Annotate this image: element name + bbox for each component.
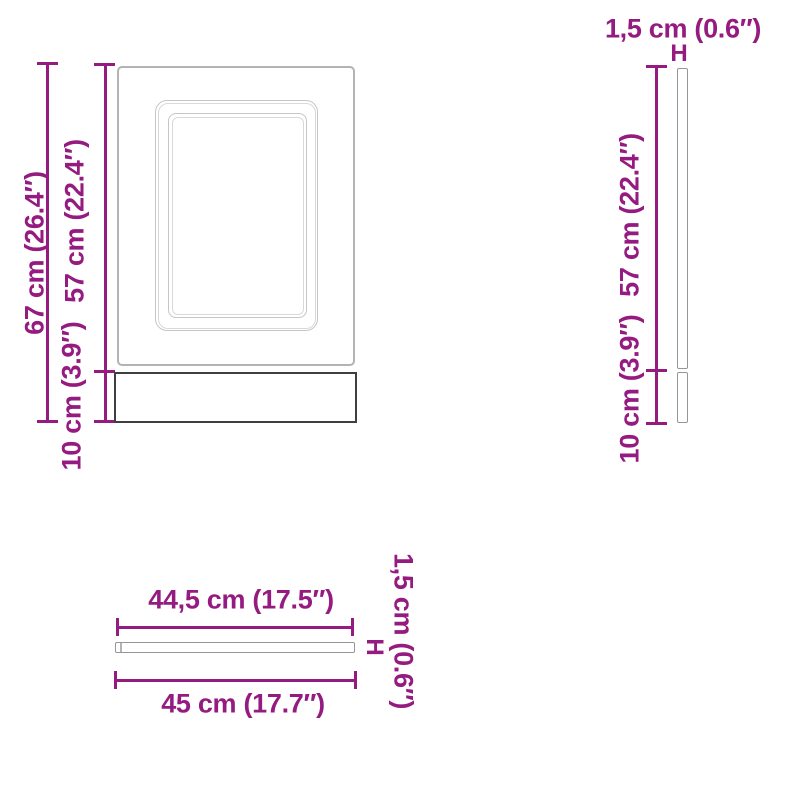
top-panel-left-endcap: [120, 643, 122, 652]
top-inner-dim-tick-left: [116, 618, 119, 636]
top-panel: [115, 642, 355, 653]
front-total-height-label: 67 cm (26.4″): [22, 171, 49, 335]
side-thickness-marker: H: [670, 42, 687, 66]
top-outer-dim-line: [116, 679, 357, 682]
side-plinth-height-label: 10 cm (3.9″): [617, 315, 644, 464]
front-inner-dim-tick-top: [94, 63, 115, 66]
side-panel-upper: [677, 68, 688, 369]
top-thickness-label: 1,5 cm (0.6″): [390, 553, 417, 709]
front-plinth-height-label: 10 cm (3.9″): [59, 322, 86, 471]
front-total-dim-line: [46, 63, 49, 423]
front-plinth-panel: [114, 372, 357, 423]
side-thickness-label: 1,5 cm (0.6″): [605, 16, 761, 43]
side-panel-lower: [677, 372, 688, 423]
side-door-height-label: 57 cm (22.4″): [617, 133, 644, 297]
top-inner-dim-line: [118, 626, 354, 629]
top-outer-dim-tick-right: [354, 671, 357, 689]
front-door-frame-inner-inner-line: [172, 117, 304, 315]
front-total-dim-tick-top: [37, 62, 58, 65]
top-thickness-marker: H: [362, 638, 386, 655]
top-inner-width-label: 44,5 cm (17.5″): [148, 587, 334, 614]
top-outer-dim-tick-left: [114, 671, 117, 689]
front-inner-dim-tick-middle: [94, 370, 115, 373]
front-door-height-label: 57 cm (22.4″): [62, 139, 89, 303]
front-total-dim-tick-bottom: [37, 420, 58, 423]
top-inner-dim-tick-right: [351, 618, 354, 636]
side-dim-tick-bottom: [646, 422, 667, 425]
front-inner-dim-tick-bottom: [94, 420, 115, 423]
top-outer-width-label: 45 cm (17.7″): [161, 691, 325, 718]
side-dim-tick-top: [646, 65, 667, 68]
dimension-diagram: 67 cm (26.4″) 57 cm (22.4″) 10 cm (3.9″)…: [0, 0, 800, 800]
front-door-frame-inner: [168, 113, 307, 318]
side-dim-tick-middle: [646, 369, 667, 372]
